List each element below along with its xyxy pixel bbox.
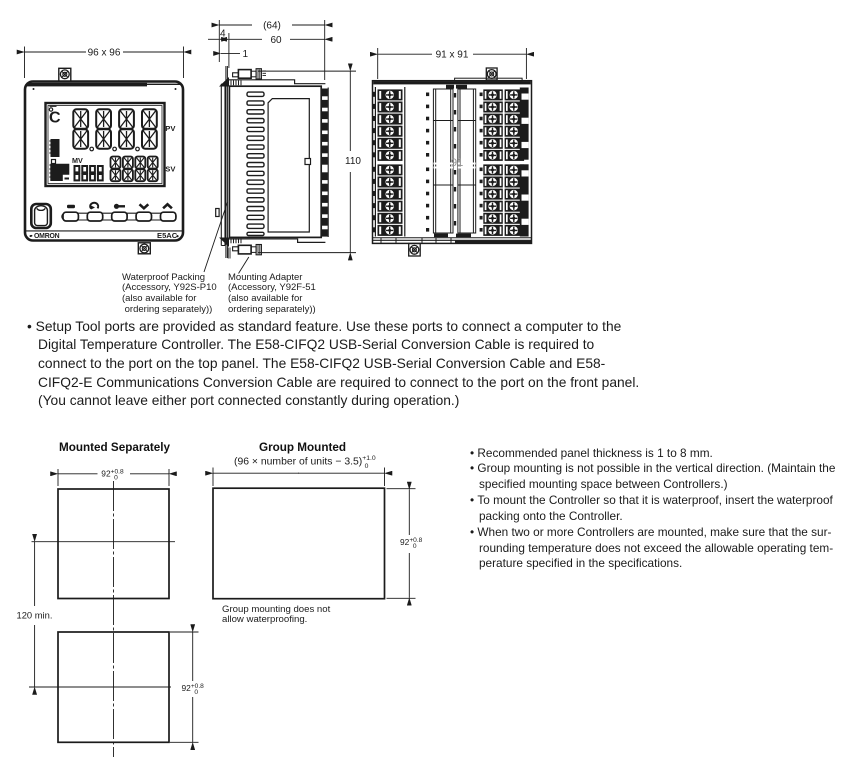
svg-text:60: 60	[270, 35, 282, 46]
svg-text:110: 110	[345, 156, 361, 167]
svg-text:MV: MV	[72, 156, 83, 165]
svg-text:91: 91	[451, 157, 463, 169]
svg-text:OMRON: OMRON	[34, 233, 60, 240]
svg-text:120 min.: 120 min.	[17, 609, 53, 620]
svg-text:C: C	[49, 110, 61, 127]
svg-text:92+0.80: 92+0.80	[400, 537, 423, 550]
svg-text:PV: PV	[165, 124, 176, 133]
svg-text:96 x 96: 96 x 96	[88, 48, 121, 59]
svg-text:(64): (64)	[263, 21, 281, 32]
svg-text:4: 4	[220, 29, 226, 40]
svg-text:91 x 91: 91 x 91	[436, 50, 469, 61]
svg-text:92+0.80: 92+0.80	[101, 469, 124, 482]
svg-text:E5AC: E5AC	[157, 231, 178, 240]
svg-text:1: 1	[243, 49, 249, 60]
svg-text:SV: SV	[165, 165, 176, 174]
